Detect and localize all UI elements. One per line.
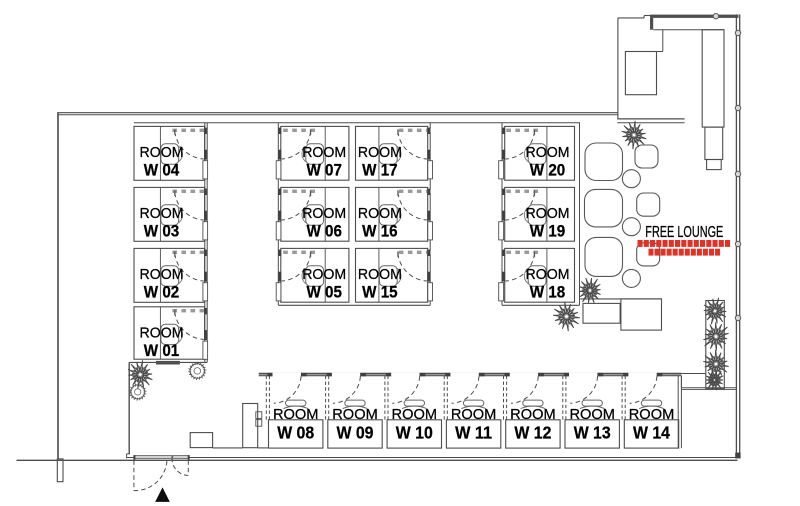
svg-text:ROOM: ROOM — [302, 144, 346, 161]
svg-text:ROOM: ROOM — [569, 406, 615, 423]
svg-text:ROOM: ROOM — [273, 406, 319, 423]
svg-text:W 17: W 17 — [362, 160, 398, 179]
svg-text:W 02: W 02 — [144, 282, 180, 301]
svg-text:FREE LOUNGE: FREE LOUNGE — [645, 224, 723, 241]
svg-text:W 08: W 08 — [277, 422, 314, 442]
svg-text:ROOM: ROOM — [140, 205, 184, 222]
svg-text:ROOM: ROOM — [140, 266, 184, 283]
svg-text:ROOM: ROOM — [302, 205, 346, 222]
svg-text:ROOM: ROOM — [140, 324, 184, 341]
svg-text:W 03: W 03 — [144, 221, 180, 240]
svg-text:W 11: W 11 — [455, 422, 492, 442]
svg-text:W 01: W 01 — [144, 341, 180, 360]
svg-text:ROOM: ROOM — [392, 406, 438, 423]
svg-text:W 05: W 05 — [306, 282, 342, 301]
svg-text:ROOM: ROOM — [510, 406, 556, 423]
svg-text:ROOM: ROOM — [358, 205, 402, 222]
svg-text:ROOM: ROOM — [302, 266, 346, 283]
svg-text:W 14: W 14 — [633, 422, 670, 442]
svg-text:W 07: W 07 — [306, 160, 342, 179]
svg-text:ROOM: ROOM — [526, 266, 570, 283]
svg-text:W 10: W 10 — [396, 422, 433, 442]
svg-text:W 18: W 18 — [530, 282, 566, 301]
svg-text:ROOM: ROOM — [526, 144, 570, 161]
svg-text:ROOM: ROOM — [526, 205, 570, 222]
svg-text:W 20: W 20 — [530, 160, 566, 179]
svg-text:W 15: W 15 — [362, 282, 398, 301]
svg-text:W 16: W 16 — [362, 221, 398, 240]
svg-text:W 12: W 12 — [514, 422, 551, 442]
svg-text:W 06: W 06 — [306, 221, 342, 240]
svg-text:W 19: W 19 — [530, 221, 566, 240]
svg-text:ROOM: ROOM — [332, 406, 378, 423]
svg-text:W 13: W 13 — [574, 422, 611, 442]
svg-text:ROOM: ROOM — [629, 406, 675, 423]
svg-text:W 04: W 04 — [144, 160, 180, 179]
svg-text:ROOM: ROOM — [140, 144, 184, 161]
svg-text:W 09: W 09 — [337, 422, 374, 442]
svg-text:ROOM: ROOM — [358, 266, 402, 283]
svg-text:ROOM: ROOM — [358, 144, 402, 161]
svg-text:ROOM: ROOM — [451, 406, 497, 423]
